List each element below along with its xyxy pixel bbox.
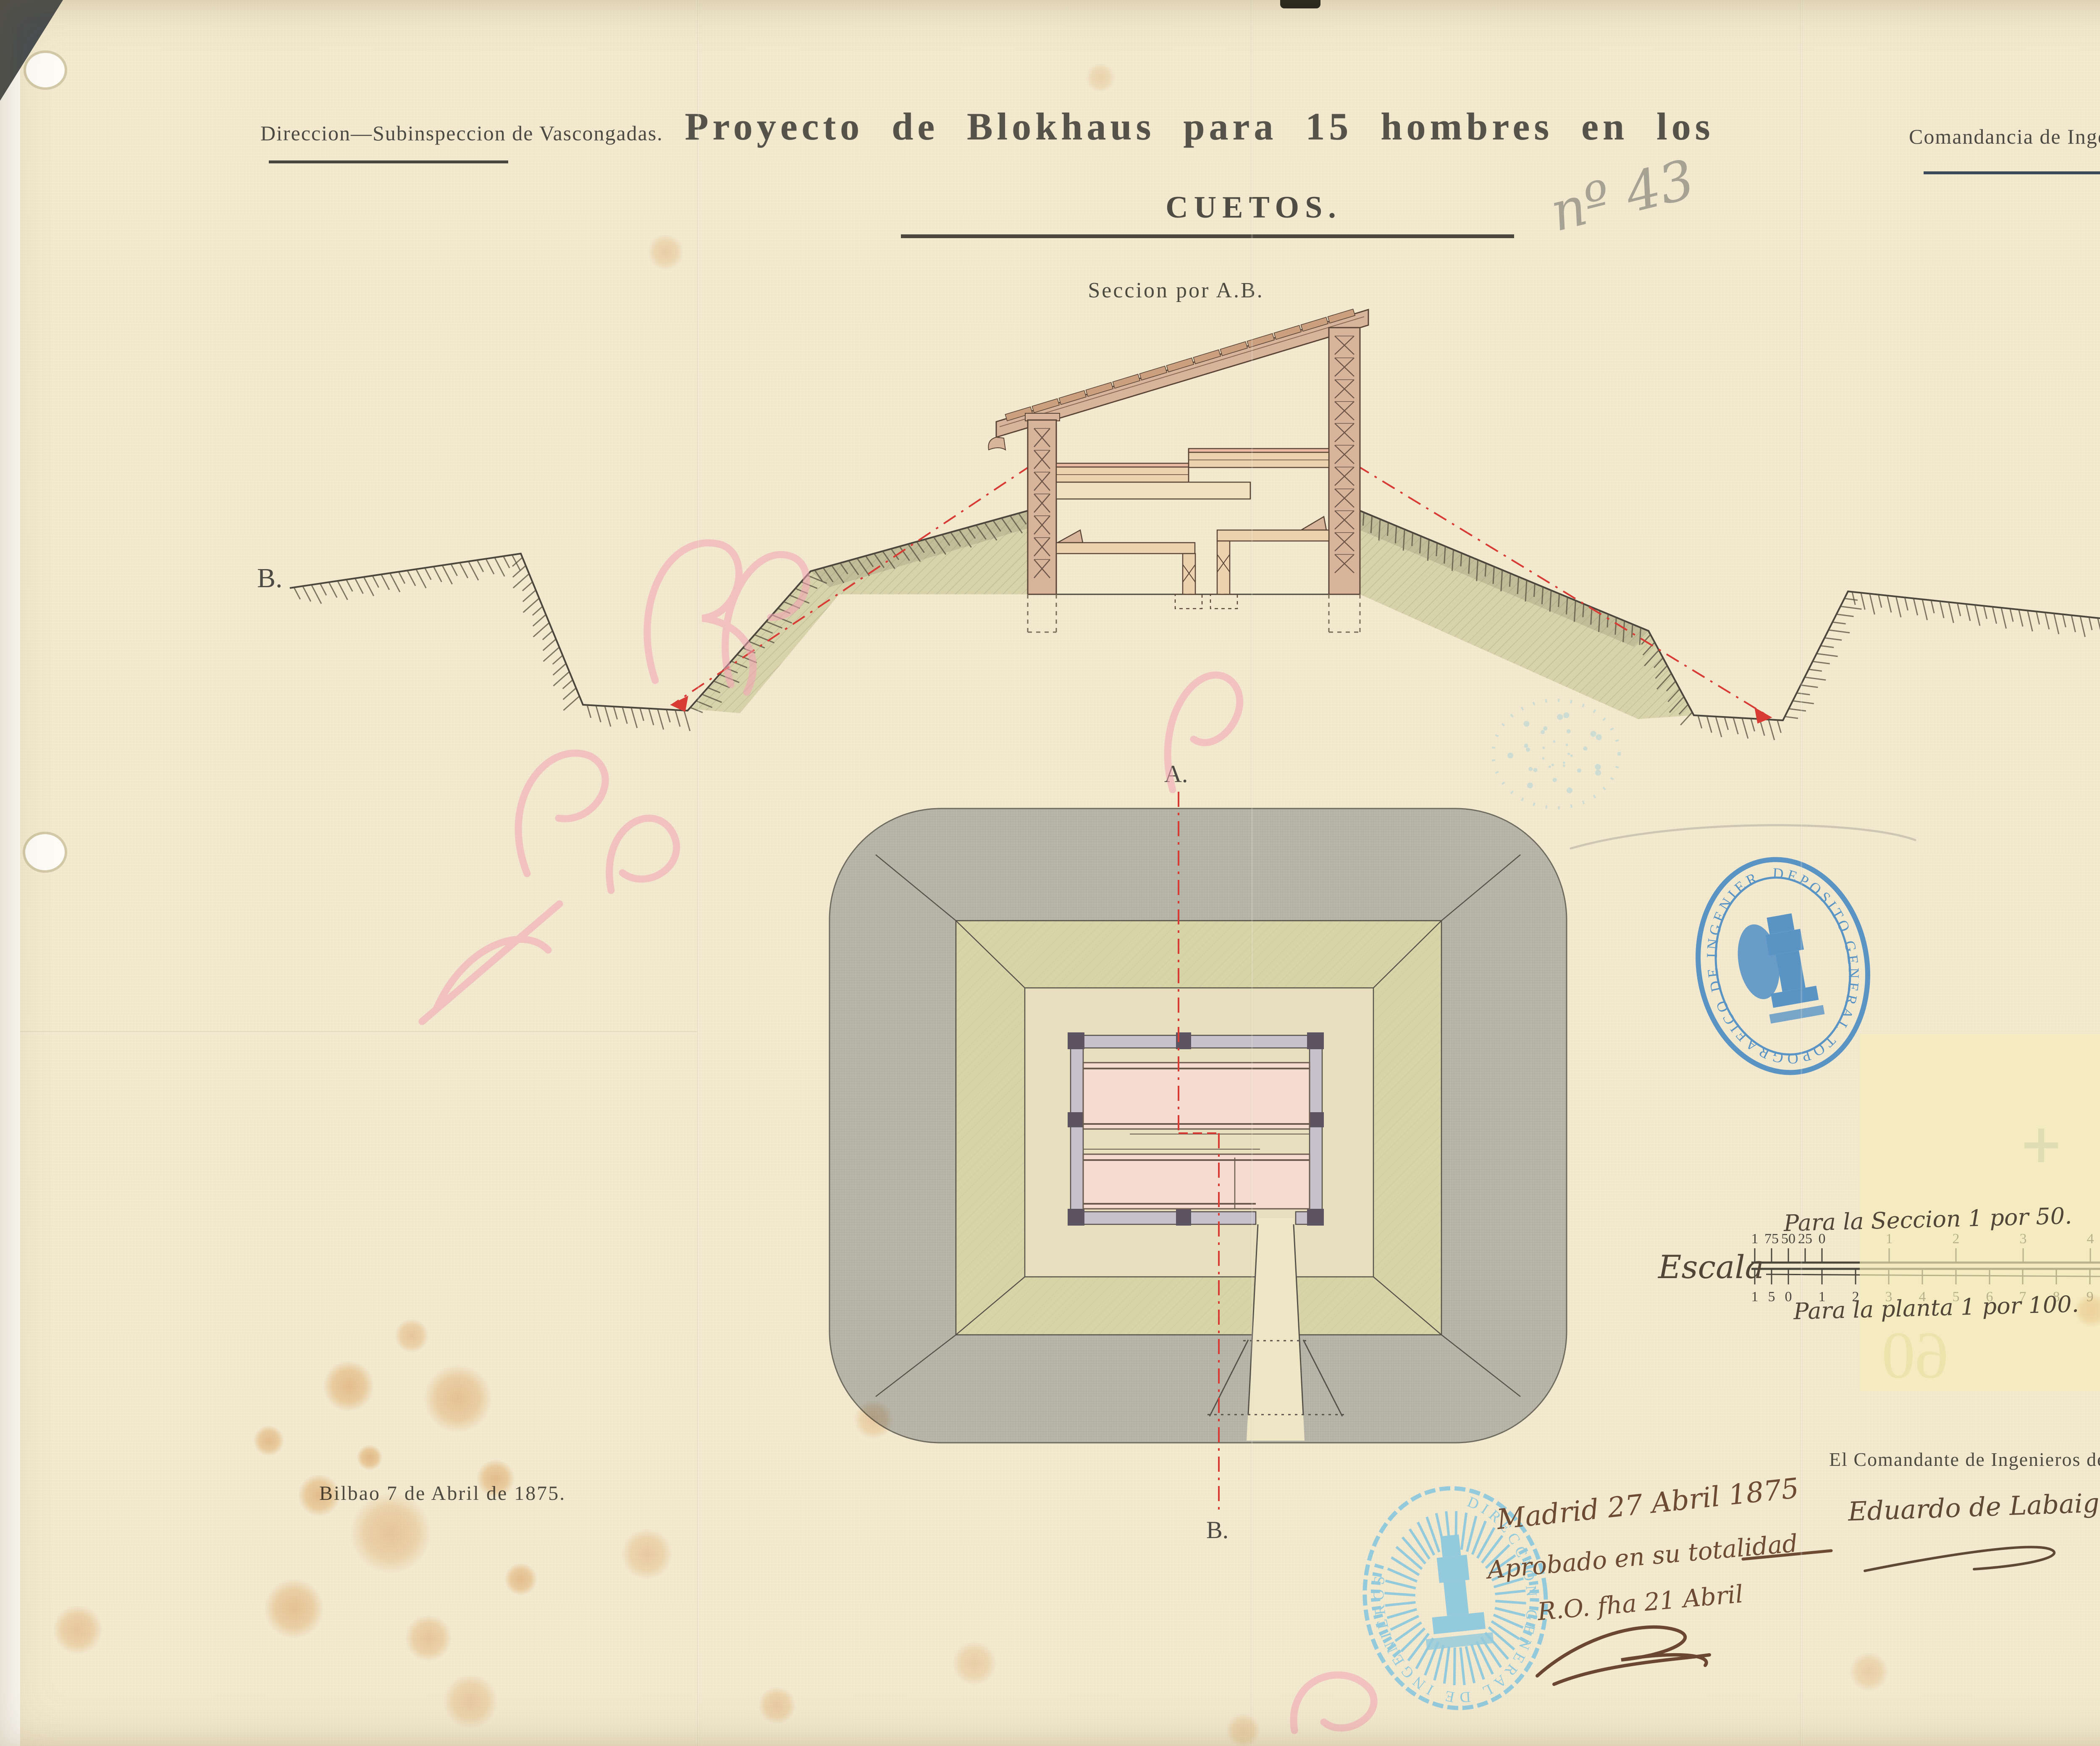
plan-label-b: B.	[1206, 1516, 1228, 1544]
pencil-curve	[1571, 825, 1915, 848]
glacis-mound-left	[691, 511, 1028, 713]
upper-platforms	[1056, 449, 1329, 499]
header-right-rule	[1924, 171, 2100, 174]
left-wall	[1025, 413, 1060, 632]
plan-view: A. B.	[829, 760, 1567, 1544]
svg-text:5: 5	[1768, 1289, 1775, 1305]
scanned-drawing-sheet: B. A.	[0, 0, 2100, 1746]
ground-hatching	[294, 512, 2100, 740]
top-edge-nick	[1280, 0, 1320, 8]
header-left-rule	[269, 160, 508, 163]
signature-title: El Comandante de Ingenieros de la plaza.	[1829, 1448, 2100, 1470]
right-wall	[1329, 328, 1360, 632]
scale-label: Escala	[1658, 1248, 1764, 1286]
header-right: Comandancia de Ingenieros de Bilbao.	[1909, 124, 2100, 149]
svg-text:1: 1	[1751, 1289, 1759, 1305]
fold-crease-horizontal	[20, 1031, 697, 1033]
blockhaus-section	[988, 309, 1368, 632]
svg-text:0: 0	[1785, 1289, 1792, 1305]
svg-text:1: 1	[1751, 1231, 1759, 1247]
labaig-rubric	[1865, 1547, 2054, 1571]
topographic-depot-stamp: DEPOSITO GENERAL TOPOGRAFICO DE INGENIER…	[1682, 846, 1884, 1086]
subtitle-rule	[901, 234, 1514, 238]
main-title: Proyecto de Blokhaus para 15 hombres en …	[685, 104, 1714, 149]
date-place: Bilbao 7 de Abril de 1875.	[319, 1482, 566, 1505]
roof-shingles	[1005, 309, 1355, 421]
verso-ghost-number: 60	[1882, 1318, 1949, 1392]
section-label-b: B.	[257, 563, 283, 593]
punch-hole-1	[26, 53, 65, 87]
faint-stamp-impression	[1493, 700, 1619, 808]
madrid-rubric	[1537, 1627, 1709, 1684]
section-caption: Seccion por A.B.	[1088, 278, 1264, 303]
glacis-mound-right	[1360, 511, 1694, 719]
section-view: B. A.	[257, 309, 2100, 740]
svg-text:75: 75	[1764, 1231, 1779, 1247]
eave-bracket	[988, 437, 1005, 450]
subtitle-cuetos: CUETOS.	[1165, 190, 1341, 226]
punch-hole-2	[25, 834, 65, 870]
header-left: Direccion—Subinspeccion de Vascongadas.	[260, 121, 663, 145]
